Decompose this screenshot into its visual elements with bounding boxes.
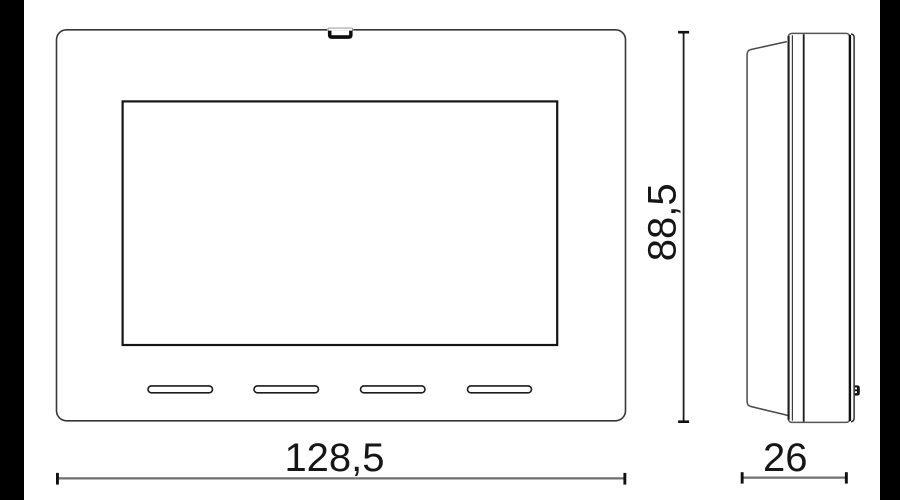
svg-text:88,5: 88,5 <box>641 183 685 261</box>
svg-text:128,5: 128,5 <box>284 436 384 480</box>
svg-text:26: 26 <box>763 436 808 480</box>
